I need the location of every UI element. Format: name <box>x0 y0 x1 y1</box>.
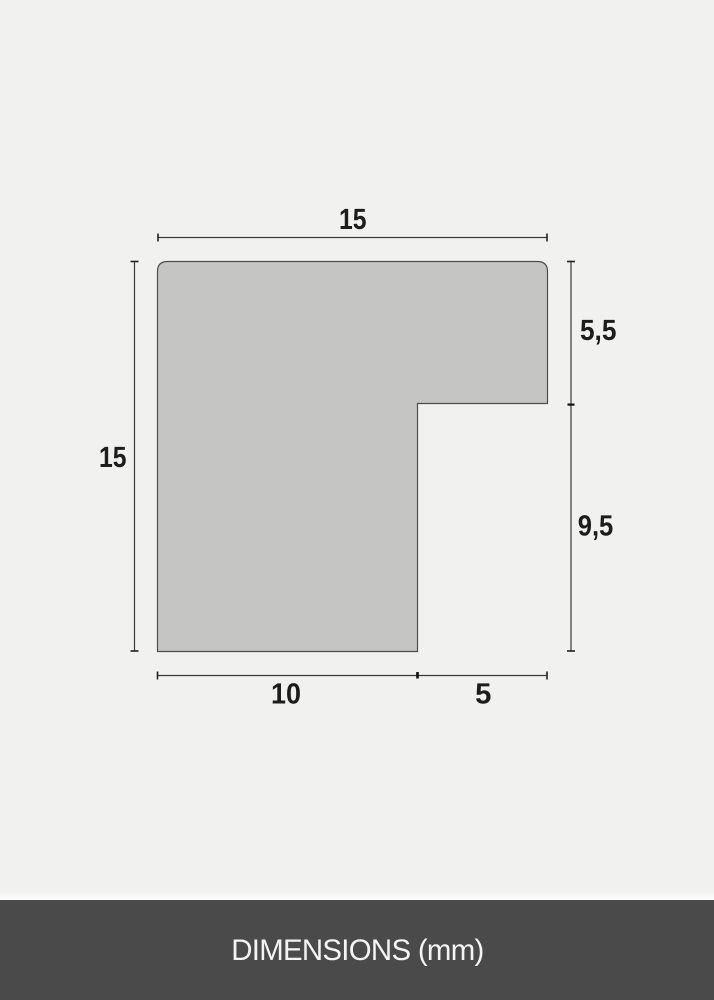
svg-text:10: 10 <box>271 679 301 711</box>
svg-text:5,5: 5,5 <box>580 315 617 347</box>
svg-text:5: 5 <box>475 679 491 711</box>
svg-text:DIMENSIONS (mm): DIMENSIONS (mm) <box>231 934 483 967</box>
svg-text:15: 15 <box>99 442 127 474</box>
svg-text:15: 15 <box>339 204 367 236</box>
svg-text:9,5: 9,5 <box>578 510 614 542</box>
